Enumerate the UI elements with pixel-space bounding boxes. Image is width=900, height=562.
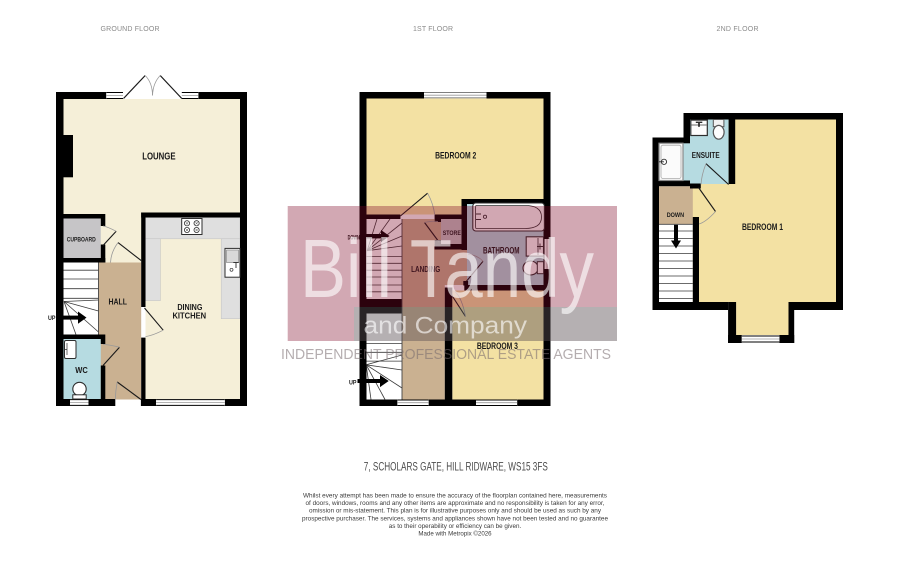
svg-text:Made with Metropix ©2026: Made with Metropix ©2026 xyxy=(418,530,492,538)
svg-text:of doors, windows, rooms and a: of doors, windows, rooms and any other i… xyxy=(306,500,605,507)
svg-text:Bill Tandy: Bill Tandy xyxy=(300,222,594,315)
svg-text:as to their operability or eff: as to their operability or efficiency ca… xyxy=(389,523,522,530)
svg-text:ENSUITE: ENSUITE xyxy=(692,151,720,160)
svg-text:UP: UP xyxy=(48,316,56,322)
svg-text:prospective purchaser. The ser: prospective purchaser. The services, sys… xyxy=(302,515,608,522)
svg-text:2ND FLOOR: 2ND FLOOR xyxy=(717,26,759,33)
svg-text:BEDROOM 1: BEDROOM 1 xyxy=(742,221,783,232)
svg-text:7, SCHOLARS GATE, HILL RIDWARE: 7, SCHOLARS GATE, HILL RIDWARE, WS15 3FS xyxy=(364,462,548,474)
svg-text:GROUND FLOOR: GROUND FLOOR xyxy=(101,26,160,33)
svg-text:HALL: HALL xyxy=(108,297,127,306)
svg-text:1ST FLOOR: 1ST FLOOR xyxy=(413,26,453,33)
svg-text:BEDROOM 2: BEDROOM 2 xyxy=(435,150,476,161)
svg-text:CUPBOARD: CUPBOARD xyxy=(67,237,96,244)
svg-text:DOWN: DOWN xyxy=(667,212,685,219)
svg-text:WC: WC xyxy=(75,366,88,375)
svg-text:UP: UP xyxy=(349,380,357,386)
svg-text:Whilst every attempt has been: Whilst every attempt has been made to en… xyxy=(303,493,607,500)
svg-text:LOUNGE: LOUNGE xyxy=(142,151,176,162)
svg-text:INDEPENDENT PROFESSIONAL EST: INDEPENDENT PROFESSIONAL ESTATE AGENTS xyxy=(281,347,611,363)
svg-text:and Company: and Company xyxy=(364,313,528,340)
svg-text:KITCHEN: KITCHEN xyxy=(172,310,206,320)
svg-text:omission or mis-statement. Thi: omission or mis-statement. This plan is … xyxy=(309,508,602,515)
